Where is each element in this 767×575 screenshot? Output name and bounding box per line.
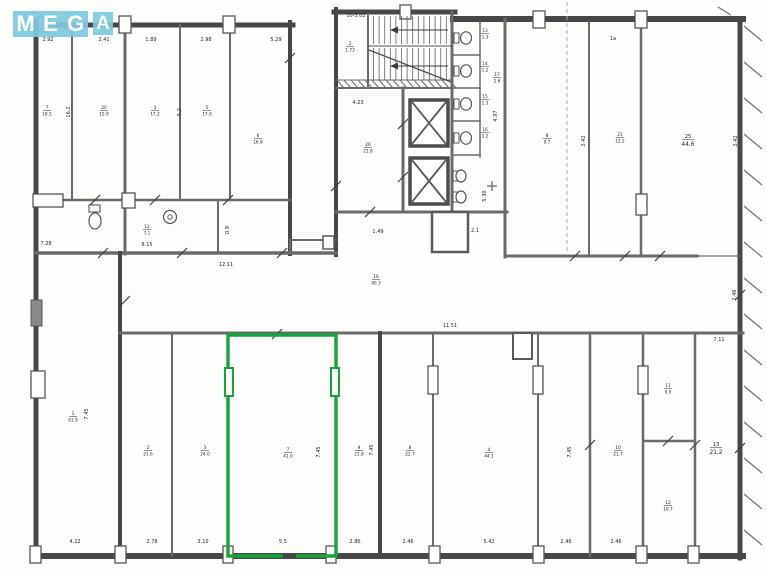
window-pier bbox=[31, 371, 45, 398]
window-pier bbox=[33, 194, 63, 207]
svg-text:0.9: 0.9 bbox=[225, 226, 231, 234]
svg-text:11: 11 bbox=[665, 383, 671, 389]
window-pier bbox=[638, 366, 648, 394]
sink-icon bbox=[164, 211, 177, 224]
svg-text:2.46: 2.46 bbox=[610, 539, 621, 545]
logo-letter-g: G bbox=[63, 11, 88, 37]
dim-label: 2.86 bbox=[349, 539, 360, 545]
svg-text:21.6: 21.6 bbox=[143, 451, 153, 457]
svg-text:5.42: 5.42 bbox=[483, 539, 494, 545]
elevator-shaft-icon bbox=[410, 100, 448, 146]
svg-text:2.86: 2.86 bbox=[349, 539, 360, 545]
window-pier bbox=[225, 368, 233, 396]
dim-label: 0.9 bbox=[225, 226, 231, 234]
svg-text:44.1: 44.1 bbox=[484, 453, 494, 459]
svg-text:9.9: 9.9 bbox=[665, 389, 672, 395]
dim-label: 4.22 bbox=[69, 539, 80, 545]
svg-text:8.15: 8.15 bbox=[141, 242, 152, 248]
svg-text:21.8: 21.8 bbox=[354, 451, 364, 457]
dim-label: 7.45 bbox=[84, 408, 90, 419]
svg-text:21: 21 bbox=[617, 132, 623, 138]
svg-text:2.42: 2.42 bbox=[581, 135, 587, 146]
dim-label: 2.78 bbox=[146, 539, 157, 545]
dim-label: 12.11 bbox=[219, 262, 233, 268]
elevator-shaft-icon bbox=[410, 158, 448, 204]
svg-text:1a: 1a bbox=[610, 36, 616, 42]
svg-text:2.46: 2.46 bbox=[402, 539, 413, 545]
dim-label: 11.51 bbox=[443, 323, 457, 329]
svg-text:6: 6 bbox=[257, 133, 260, 139]
toilet-icon bbox=[454, 98, 472, 110]
svg-text:11.51: 11.51 bbox=[443, 323, 457, 329]
svg-text:7.28: 7.28 bbox=[40, 241, 51, 247]
svg-text:9: 9 bbox=[358, 445, 361, 451]
svg-text:17.9: 17.9 bbox=[202, 111, 212, 117]
svg-text:2.46: 2.46 bbox=[732, 289, 738, 300]
dim-label: 5.29 bbox=[270, 37, 281, 43]
dim-label: 5.2 bbox=[177, 108, 183, 116]
dim-label: 4.97 bbox=[493, 110, 499, 121]
dim-label: 2.41 bbox=[98, 37, 109, 43]
svg-text:44,6: 44,6 bbox=[682, 142, 695, 148]
window-pier bbox=[223, 16, 235, 33]
dim-label: 2.46 bbox=[560, 539, 571, 545]
svg-text:25: 25 bbox=[685, 134, 692, 140]
svg-text:1.3: 1.3 bbox=[482, 100, 489, 106]
svg-text:2.41: 2.41 bbox=[98, 37, 109, 43]
dim-label: 7.45 bbox=[316, 446, 322, 457]
svg-text:41.0: 41.0 bbox=[283, 453, 293, 459]
svg-text:21.7: 21.7 bbox=[613, 451, 623, 457]
dim-label: 2.1 bbox=[471, 228, 479, 234]
svg-text:2.92: 2.92 bbox=[42, 37, 53, 43]
window-pier bbox=[331, 368, 339, 396]
svg-text:2.46: 2.46 bbox=[560, 539, 571, 545]
svg-text:5.29: 5.29 bbox=[270, 37, 281, 43]
window-pier bbox=[635, 11, 647, 28]
dim-label: 2.46 bbox=[402, 539, 413, 545]
svg-text:1.73: 1.73 bbox=[345, 47, 355, 53]
floor-plan: 718.52015.9317.2517.9616.8127.121.732621… bbox=[0, 0, 767, 575]
svg-text:22.7: 22.7 bbox=[405, 451, 415, 457]
floorplan-screenshot: 718.52015.9317.2517.9616.8127.121.732621… bbox=[0, 0, 767, 575]
dim-label: 3.10 bbox=[197, 539, 208, 545]
svg-text:21.8: 21.8 bbox=[363, 148, 373, 154]
dim-label: 2.46 bbox=[610, 539, 621, 545]
svg-text:10.7: 10.7 bbox=[663, 506, 673, 512]
svg-text:18.5: 18.5 bbox=[42, 111, 52, 117]
window-pier bbox=[30, 546, 41, 563]
svg-text:4.22: 4.22 bbox=[69, 539, 80, 545]
svg-text:17: 17 bbox=[494, 72, 500, 78]
svg-text:61.9: 61.9 bbox=[68, 417, 78, 423]
window-pier bbox=[636, 194, 647, 215]
logo-letter-m: M bbox=[13, 11, 38, 37]
dim-label: 2.92 bbox=[42, 37, 53, 43]
svg-text:17.2: 17.2 bbox=[150, 111, 160, 117]
svg-text:3.10: 3.10 bbox=[197, 539, 208, 545]
svg-text:3: 3 bbox=[154, 105, 157, 111]
svg-text:13: 13 bbox=[713, 442, 720, 448]
svg-text:24.0: 24.0 bbox=[200, 451, 210, 457]
logo-letter-a: A bbox=[93, 12, 113, 35]
svg-text:2.42: 2.42 bbox=[733, 135, 739, 146]
svg-text:12: 12 bbox=[144, 224, 150, 230]
svg-text:13: 13 bbox=[482, 28, 488, 34]
dim-label: 1.49 bbox=[372, 229, 383, 235]
svg-text:16: 16 bbox=[482, 127, 488, 133]
window-pier bbox=[115, 546, 126, 563]
toilet-icon bbox=[454, 65, 472, 77]
dim-label: 2.42 bbox=[733, 135, 739, 146]
dim-label: 5.5 bbox=[279, 539, 287, 545]
dim-label: 7.28 bbox=[40, 241, 51, 247]
window-pier bbox=[533, 366, 543, 394]
dim-label: 1a bbox=[610, 36, 616, 42]
toilet-icon bbox=[453, 191, 466, 203]
logo-letter-e: E bbox=[38, 11, 63, 37]
svg-text:9.7: 9.7 bbox=[544, 139, 551, 145]
window-pier bbox=[688, 546, 699, 563]
svg-text:7.1: 7.1 bbox=[144, 230, 151, 236]
svg-text:16.2: 16.2 bbox=[66, 106, 72, 117]
svg-text:2: 2 bbox=[349, 41, 352, 47]
svg-text:7.11: 7.11 bbox=[713, 337, 724, 343]
svg-text:4: 4 bbox=[488, 447, 491, 453]
svg-text:12.2: 12.2 bbox=[615, 138, 625, 144]
window-pier bbox=[119, 16, 131, 33]
toilet-icon bbox=[454, 132, 472, 144]
svg-text:1.2: 1.2 bbox=[482, 133, 489, 139]
svg-text:5.30: 5.30 bbox=[482, 190, 488, 201]
svg-text:2.1: 2.1 bbox=[471, 228, 479, 234]
svg-text:1.2: 1.2 bbox=[482, 67, 489, 73]
window-pier bbox=[533, 11, 545, 28]
svg-text:16: 16 bbox=[373, 274, 379, 280]
svg-text:7.45: 7.45 bbox=[316, 446, 322, 457]
svg-text:5.2: 5.2 bbox=[177, 108, 183, 116]
svg-text:90.3: 90.3 bbox=[371, 280, 381, 286]
svg-text:7: 7 bbox=[287, 447, 290, 453]
svg-text:1.49: 1.49 bbox=[372, 229, 383, 235]
svg-text:7.45: 7.45 bbox=[567, 446, 573, 457]
svg-text:10-3.02: 10-3.02 bbox=[346, 13, 365, 19]
svg-text:16.8: 16.8 bbox=[253, 139, 263, 145]
dim-label: 1.89 bbox=[145, 37, 156, 43]
toilet-icon bbox=[453, 170, 466, 182]
svg-text:3: 3 bbox=[204, 445, 207, 451]
dim-label: 10-3.02 bbox=[346, 13, 365, 19]
toilet-icon bbox=[454, 32, 472, 44]
svg-text:2.78: 2.78 bbox=[146, 539, 157, 545]
svg-text:15.9: 15.9 bbox=[99, 111, 109, 117]
svg-text:1.89: 1.89 bbox=[145, 37, 156, 43]
svg-text:1: 1 bbox=[72, 411, 75, 417]
window-pier bbox=[533, 546, 544, 563]
svg-text:12.11: 12.11 bbox=[219, 262, 233, 268]
dim-label: 8.15 bbox=[141, 242, 152, 248]
dim-label: 7.45 bbox=[369, 444, 375, 455]
toilet-icon bbox=[89, 205, 101, 229]
svg-text:2.98: 2.98 bbox=[200, 37, 211, 43]
svg-text:5: 5 bbox=[206, 105, 209, 111]
svg-text:2.6: 2.6 bbox=[494, 78, 501, 84]
svg-text:7: 7 bbox=[46, 105, 49, 111]
window-pier bbox=[428, 366, 438, 394]
svg-text:14: 14 bbox=[482, 61, 488, 67]
window-pier bbox=[429, 546, 440, 563]
svg-text:4.97: 4.97 bbox=[493, 110, 499, 121]
svg-text:12: 12 bbox=[665, 500, 671, 506]
dim-label: 7.45 bbox=[567, 446, 573, 457]
svg-text:8: 8 bbox=[546, 133, 549, 139]
window-pier bbox=[122, 193, 135, 208]
window-pier bbox=[636, 546, 647, 563]
svg-text:8: 8 bbox=[409, 445, 412, 451]
svg-text:21,2: 21,2 bbox=[710, 450, 723, 456]
dim-label: 2.98 bbox=[200, 37, 211, 43]
dim-label: 5.42 bbox=[483, 539, 494, 545]
svg-text:20: 20 bbox=[101, 105, 107, 111]
svg-text:15: 15 bbox=[482, 94, 488, 100]
svg-text:7.45: 7.45 bbox=[369, 444, 375, 455]
dim-label: 5.30 bbox=[482, 190, 488, 201]
svg-text:10: 10 bbox=[615, 445, 621, 451]
dim-label: 16.2 bbox=[66, 106, 72, 117]
svg-text:26: 26 bbox=[365, 142, 371, 148]
svg-text:2: 2 bbox=[147, 445, 150, 451]
watermark-logo: M E G A bbox=[13, 11, 113, 37]
dim-label: 2.42 bbox=[581, 135, 587, 146]
svg-text:5.5: 5.5 bbox=[279, 539, 287, 545]
svg-text:1.3: 1.3 bbox=[482, 34, 489, 40]
dim-label: 7.11 bbox=[713, 337, 724, 343]
svg-text:7.45: 7.45 bbox=[84, 408, 90, 419]
dim-label: 4.23 bbox=[352, 100, 363, 106]
svg-text:4.23: 4.23 bbox=[352, 100, 363, 106]
dim-label: 2.46 bbox=[732, 289, 738, 300]
